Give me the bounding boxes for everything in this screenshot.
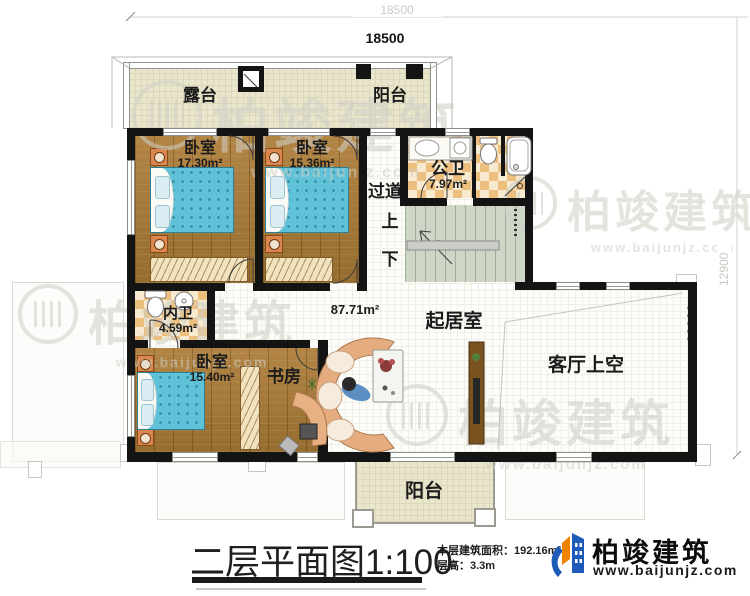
wall bbox=[359, 136, 367, 283]
brand-url: www.baijunjz.com bbox=[593, 562, 738, 578]
dimension-right-outer: 12900 bbox=[717, 238, 731, 300]
room-label-balcony-top: 阳台 bbox=[358, 87, 422, 105]
wall bbox=[255, 136, 263, 283]
room-label-public-bath: 公卫 7.97m² bbox=[408, 160, 488, 191]
stair-label-down: 下 bbox=[379, 251, 401, 269]
wall bbox=[400, 198, 447, 206]
terrace-parapet-top bbox=[123, 62, 437, 69]
room-area-bedroom1: 17.30m² bbox=[158, 157, 242, 170]
floor-area-text: 本层建筑面积：192.16m² bbox=[437, 542, 561, 558]
room-area-public-bath: 7.97m² bbox=[408, 178, 488, 191]
column-post bbox=[248, 461, 266, 472]
window bbox=[172, 452, 218, 462]
vent-dashes bbox=[514, 206, 517, 236]
wall bbox=[525, 128, 533, 290]
chimney-flue bbox=[243, 71, 259, 87]
bed-bedroom1 bbox=[150, 167, 234, 233]
floor-height-text: 层高：3.3m bbox=[437, 557, 495, 573]
window bbox=[268, 128, 330, 136]
roof-outline-left bbox=[12, 282, 124, 462]
terrace-column bbox=[356, 64, 371, 79]
window bbox=[127, 375, 135, 437]
column-post bbox=[28, 461, 42, 478]
title-underline bbox=[192, 577, 422, 583]
room-label-bedroom1: 卧室 17.30m² bbox=[158, 140, 242, 170]
wardrobe bbox=[150, 257, 248, 282]
wall bbox=[180, 340, 310, 348]
room-area-living: 87.71m² bbox=[320, 303, 390, 317]
room-label-living: 起居室 bbox=[408, 312, 500, 333]
roof-slab-left bbox=[0, 441, 121, 468]
window bbox=[606, 282, 630, 290]
wall bbox=[127, 340, 148, 348]
dimension-top-outer: 18500 bbox=[352, 3, 442, 17]
wardrobe bbox=[265, 257, 333, 282]
room-label-ensuite-bath: 内卫 4.59m² bbox=[138, 306, 218, 335]
portico-outline-right bbox=[505, 462, 645, 520]
balcony-sliding-door bbox=[390, 452, 455, 462]
room-label-study: 书房 bbox=[258, 368, 310, 386]
terrace-parapet-left bbox=[123, 62, 130, 129]
watermark: 柏竣建筑 www.baijunjz.com bbox=[503, 176, 750, 255]
bed-bedroom2 bbox=[265, 167, 349, 233]
room-label-bedroom2: 卧室 15.36m² bbox=[270, 140, 354, 170]
nightstand bbox=[150, 235, 168, 253]
window bbox=[556, 452, 592, 462]
wall bbox=[357, 283, 367, 291]
room-area-bedroom3: 15.40m² bbox=[168, 371, 256, 384]
room-label-bedroom3: 卧室 15.40m² bbox=[168, 354, 256, 384]
window bbox=[445, 128, 470, 136]
title-underline-shadow bbox=[196, 588, 426, 590]
wall bbox=[318, 340, 328, 452]
watermark-brand: 柏竣建筑 bbox=[567, 176, 750, 240]
dimension-top-inner: 18500 bbox=[340, 30, 430, 46]
wall bbox=[501, 136, 505, 176]
brand-logo-icon bbox=[548, 531, 588, 579]
window bbox=[370, 128, 396, 136]
terrace-column bbox=[406, 64, 423, 79]
nightstand bbox=[265, 235, 283, 253]
stair-label-up: 上 bbox=[379, 213, 401, 231]
dimension-right-inner: 12900 bbox=[684, 292, 700, 356]
room-area-ensuite-bath: 4.59m² bbox=[138, 322, 218, 335]
wall bbox=[473, 198, 533, 206]
window bbox=[127, 160, 135, 235]
wall bbox=[127, 452, 390, 462]
wall bbox=[253, 283, 330, 291]
room-area-bedroom2: 15.36m² bbox=[270, 157, 354, 170]
room-label-terrace: 露台 bbox=[168, 87, 232, 105]
column-post bbox=[695, 444, 711, 466]
floor-plan-canvas: 柏竣建筑 www.baijunjz.com 柏竣建筑 www.baijunjz.… bbox=[0, 0, 750, 596]
nightstand bbox=[137, 429, 154, 446]
room-label-balcony-bottom: 阳台 bbox=[394, 482, 454, 503]
window bbox=[297, 452, 318, 462]
terrace-parapet-right bbox=[430, 62, 437, 129]
window bbox=[163, 128, 217, 136]
window bbox=[556, 282, 580, 290]
nightstand bbox=[137, 355, 154, 372]
balcony-column bbox=[474, 508, 496, 527]
staircase bbox=[405, 205, 525, 282]
balcony-column bbox=[352, 509, 374, 528]
room-label-living-void: 客厅上空 bbox=[536, 356, 636, 377]
room-label-corridor: 过道 bbox=[363, 183, 407, 201]
